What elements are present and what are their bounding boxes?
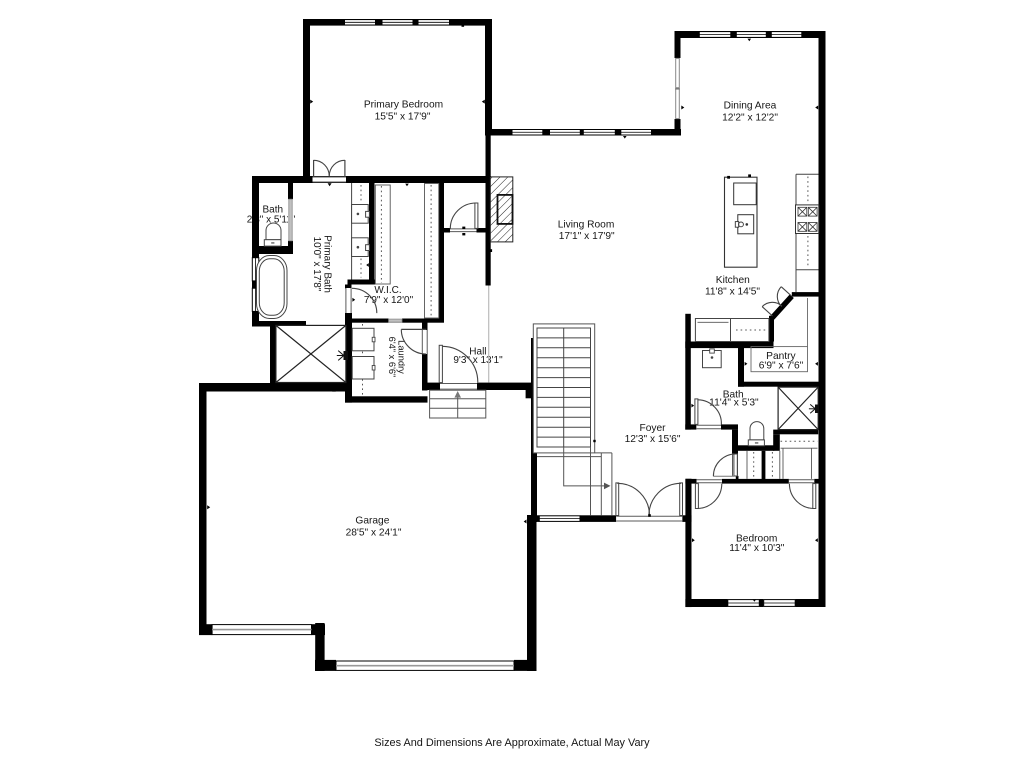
svg-text:12'2" x 12'2": 12'2" x 12'2" [722, 112, 778, 123]
svg-text:15'5" x 17'9": 15'5" x 17'9" [375, 111, 431, 122]
svg-text:Sizes And Dimensions Are Appro: Sizes And Dimensions Are Approximate, Ac… [374, 737, 650, 749]
svg-text:12'3" x 15'6": 12'3" x 15'6" [625, 434, 681, 445]
svg-text:6'4" x 6'6": 6'4" x 6'6" [387, 337, 397, 378]
svg-text:17'1" x 17'9": 17'1" x 17'9" [559, 231, 615, 242]
svg-text:6'9" x 7'6": 6'9" x 7'6" [759, 361, 804, 372]
svg-text:Primary Bath: Primary Bath [322, 235, 333, 293]
svg-text:Dining Area: Dining Area [724, 100, 777, 111]
svg-text:Living Room: Living Room [558, 219, 615, 230]
svg-text:11'4" x 5'3": 11'4" x 5'3" [709, 398, 759, 409]
svg-text:Primary Bedroom: Primary Bedroom [364, 99, 443, 110]
svg-text:10'0" x 17'8": 10'0" x 17'8" [311, 237, 322, 292]
svg-text:Kitchen: Kitchen [716, 275, 750, 286]
svg-text:Foyer: Foyer [639, 423, 666, 434]
svg-text:Garage: Garage [355, 516, 389, 527]
svg-text:Laundry: Laundry [397, 340, 407, 374]
svg-text:11'8" x 14'5": 11'8" x 14'5" [705, 287, 760, 298]
svg-text:28'5" x 24'1": 28'5" x 24'1" [346, 528, 402, 539]
svg-text:9'3" x 13'1": 9'3" x 13'1" [453, 355, 503, 366]
svg-text:11'4" x 10'3": 11'4" x 10'3" [729, 543, 784, 554]
